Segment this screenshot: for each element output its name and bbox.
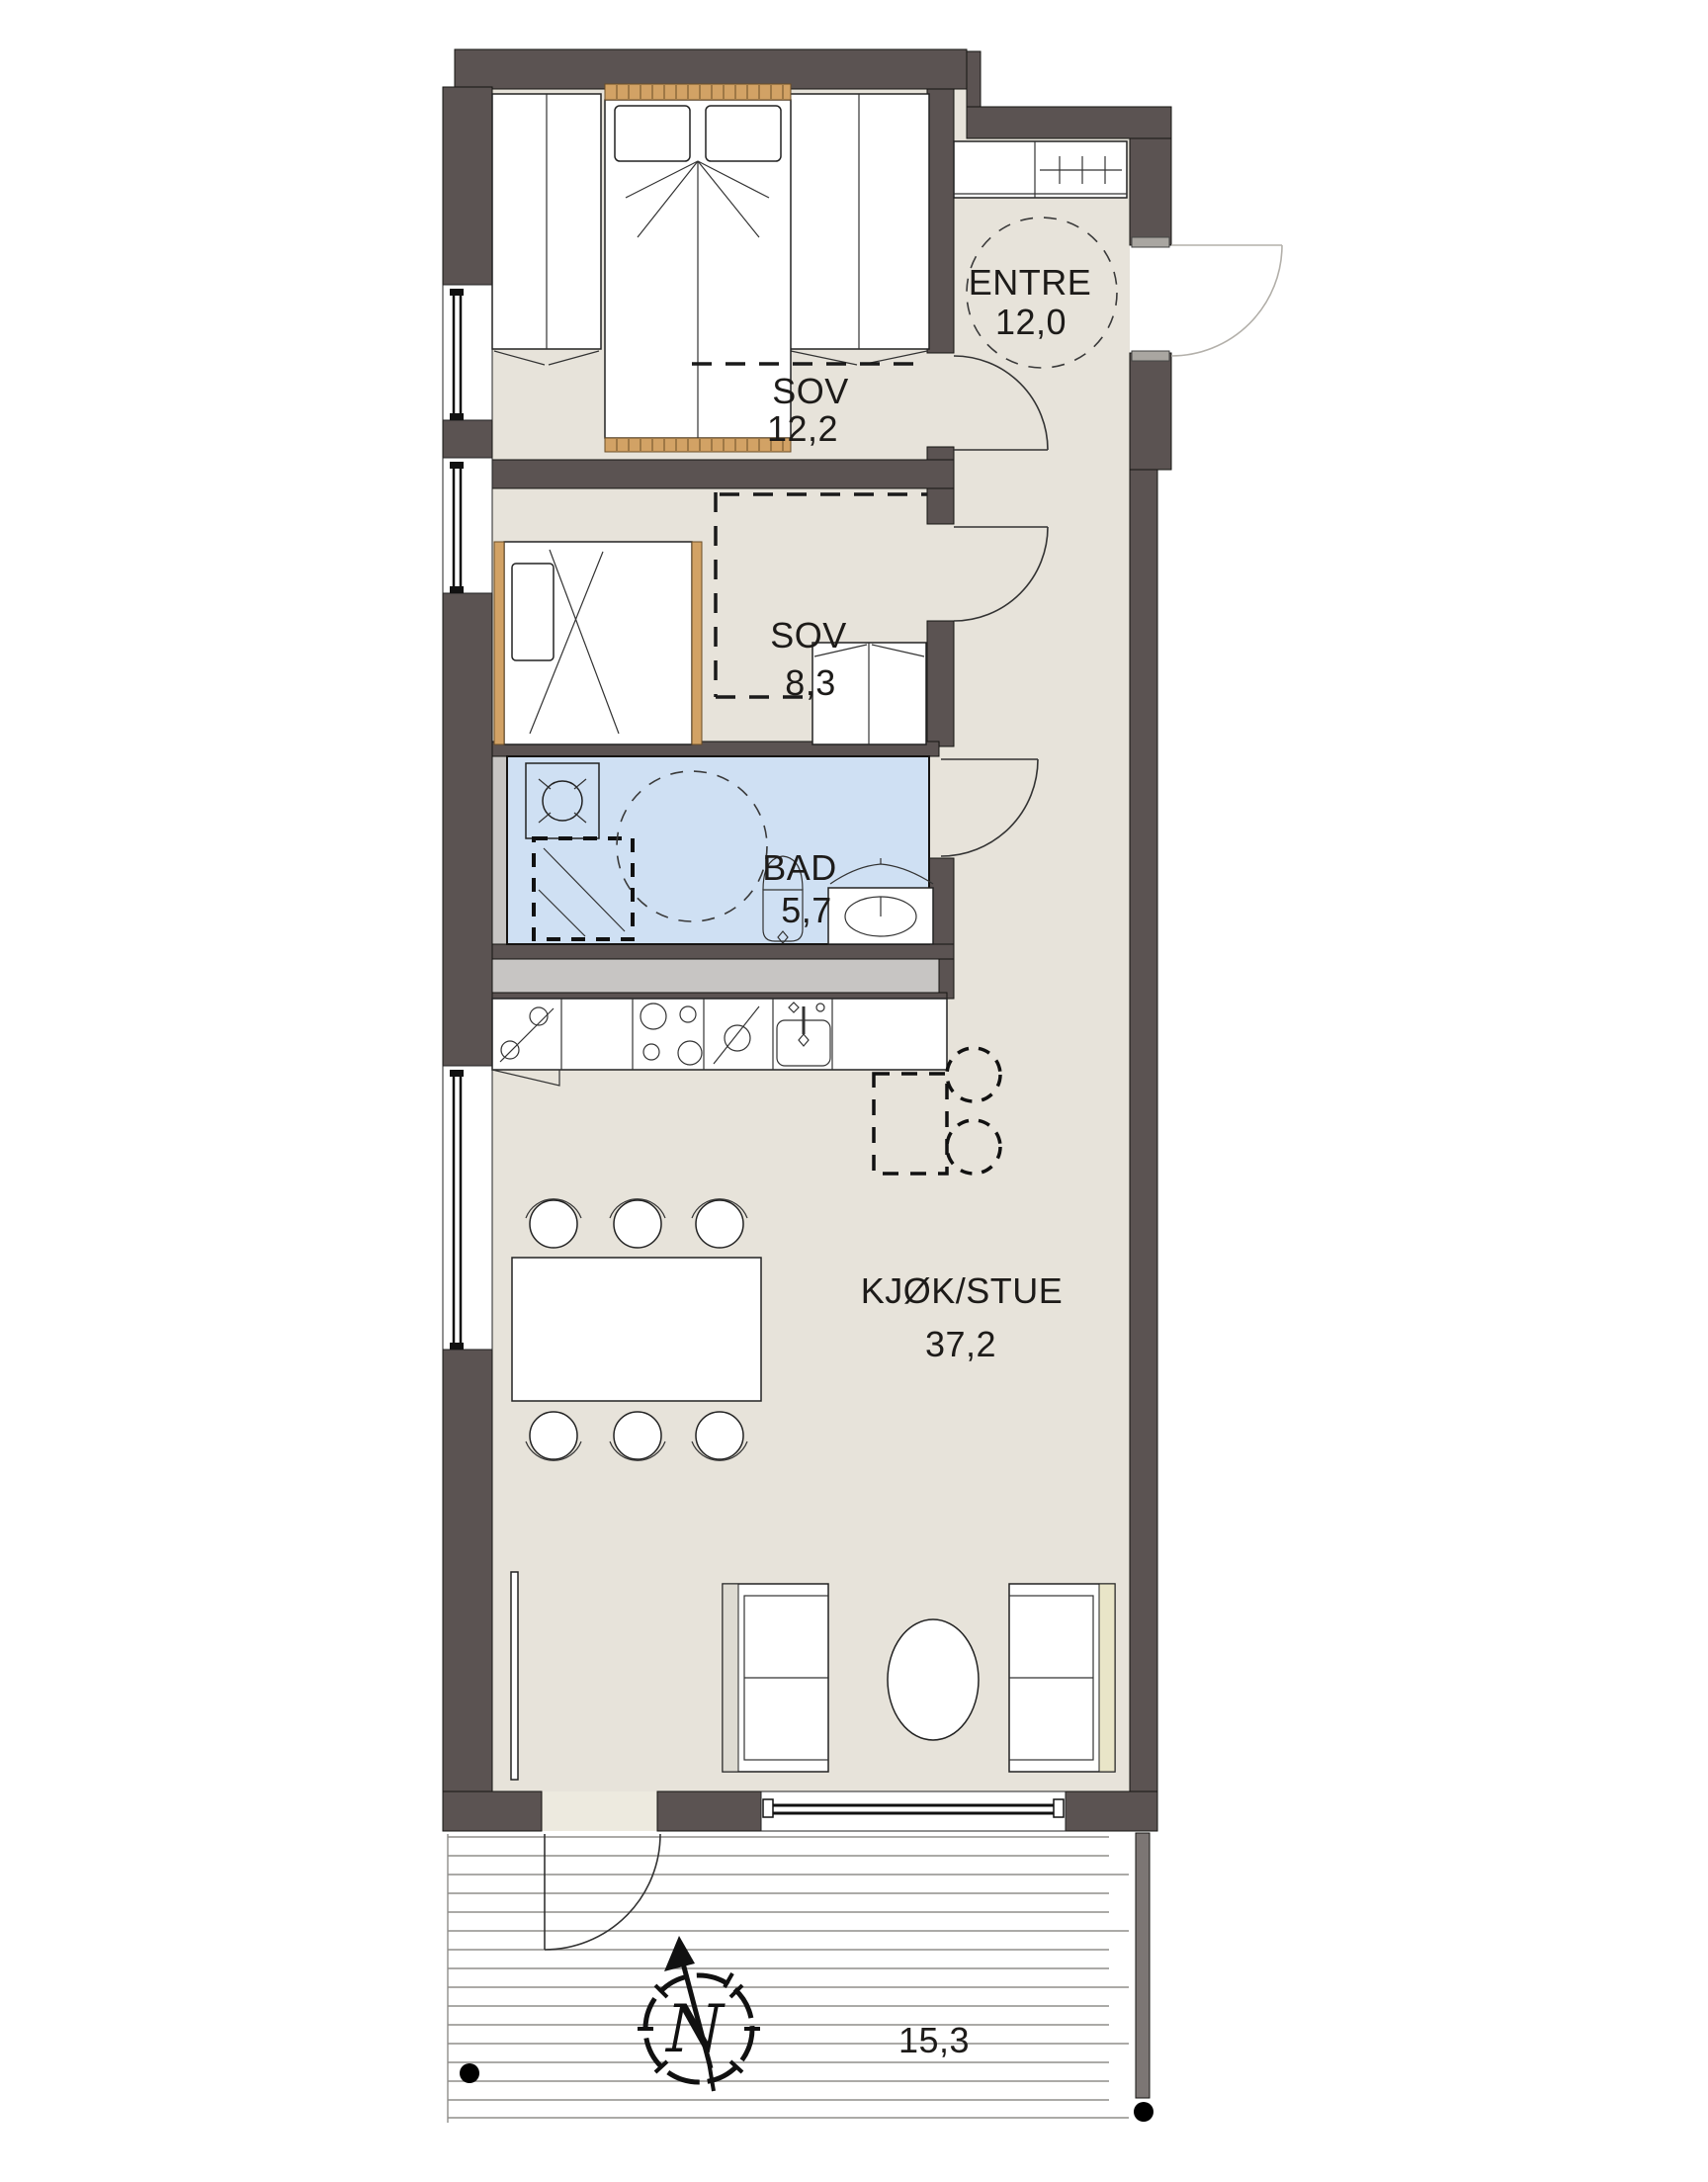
terrace-dimension: 15,3 (898, 2020, 970, 2060)
wall-top (455, 49, 967, 89)
wall-left-1 (443, 87, 492, 285)
wall-bottom-mid (657, 1791, 761, 1831)
room-label-bad: BAD (762, 847, 837, 888)
wall-right-upper (1130, 138, 1171, 245)
room-area-kjok-stue: 37,2 (925, 1324, 996, 1364)
compass-label: N (664, 1991, 726, 2067)
wall-left-2 (443, 420, 492, 458)
north-compass-icon: N (638, 1936, 760, 2091)
wall-left-3 (443, 593, 492, 1066)
room-area-sov-1: 12,2 (767, 408, 838, 449)
entrance-door-swing-icon (1171, 245, 1282, 356)
wall-right-mid (1130, 353, 1171, 470)
dining-area (512, 1199, 761, 1460)
entre-closet (954, 141, 1127, 198)
north-arrow-head (664, 1936, 695, 1971)
floor-plan-sheet: ENTRE 12,0 SOV 12,2 SOV 8,3 BAD 5,7 KJØK… (0, 0, 1708, 2182)
coffee-table-icon (888, 1619, 979, 1740)
terrace-door-threshold (542, 1791, 657, 1831)
dining-table-icon (512, 1258, 761, 1401)
bath-wall-liner (492, 756, 507, 944)
railing-post (1136, 1833, 1150, 2098)
room-label-sov-2: SOV (770, 615, 847, 655)
wall-sov1-sov2 (492, 460, 954, 488)
kitchen-counter (492, 999, 947, 1070)
terrace-post-dot-left (460, 2063, 479, 2083)
terrace-post-dot-right (1134, 2102, 1153, 2122)
sofa-icon (1009, 1584, 1115, 1772)
wall-bottom-right (1066, 1791, 1157, 1831)
wall-left-4 (443, 1350, 492, 1791)
room-area-sov-2: 8,3 (785, 662, 836, 703)
floor-plan-drawing: ENTRE 12,0 SOV 12,2 SOV 8,3 BAD 5,7 KJØK… (0, 0, 1708, 2182)
wardrobe-icon (789, 94, 929, 365)
wall-bath-bottom (492, 944, 954, 959)
wardrobe-icon (492, 94, 601, 365)
wall-jamb-sov1 (927, 447, 954, 460)
entrance-jamb-bottom (1132, 351, 1169, 361)
terrace (448, 1833, 1153, 2123)
sideboard-icon (511, 1572, 518, 1780)
wall-bottom-left (443, 1791, 542, 1831)
double-bed-icon (605, 84, 791, 452)
window-sov2 (443, 458, 492, 593)
exterior-notch (967, 44, 1174, 107)
window-living-south (761, 1791, 1066, 1831)
room-area-bad: 5,7 (781, 890, 832, 930)
door-swing-icon (545, 1834, 660, 1950)
room-label-sov-1: SOV (772, 371, 849, 411)
single-bed-icon (494, 542, 702, 744)
window-sov1 (443, 285, 492, 420)
room-label-entre: ENTRE (969, 262, 1092, 303)
wall-entre-top (967, 107, 1171, 138)
technical-shaft (492, 959, 939, 993)
entrance-jamb-top (1132, 237, 1169, 247)
room-label-kjok-stue: KJØK/STUE (861, 1270, 1064, 1311)
bathroom (492, 756, 933, 944)
wall-sov2-hall-a (927, 488, 954, 524)
sofa-icon (723, 1584, 828, 1772)
wall-right-main (1130, 470, 1157, 1791)
wall-sov1-entre (927, 89, 954, 353)
window-living (443, 1066, 492, 1350)
wall-sov2-hall-b (927, 621, 954, 746)
room-area-entre: 12,0 (995, 302, 1067, 342)
